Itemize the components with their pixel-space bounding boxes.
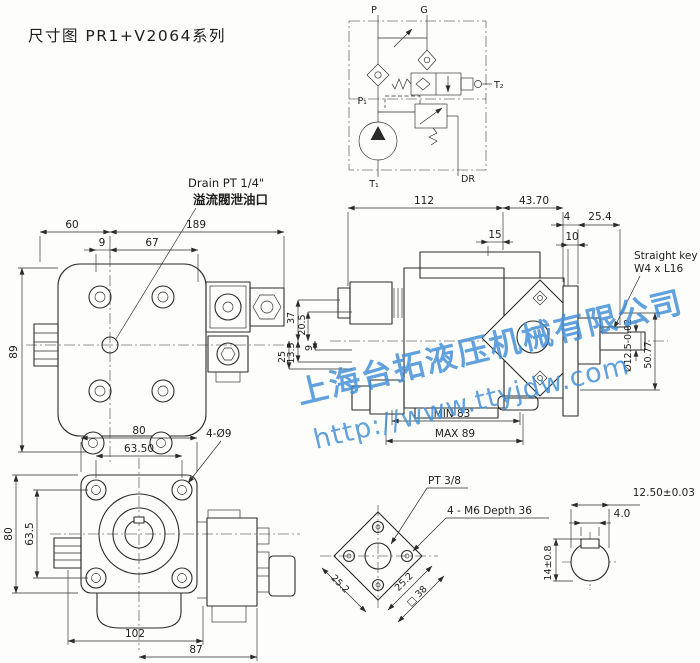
port-label-t1: T₁ xyxy=(368,179,379,190)
key-section xyxy=(581,539,599,548)
front-view: Drain PT 1/4" 溢流閥泄油口 60 189 9 67 89 xyxy=(8,176,292,462)
dim-10: 10 xyxy=(565,231,578,243)
dim-9-side: 9 xyxy=(304,345,315,351)
adjust-screw xyxy=(350,282,392,324)
drain-label-cn: 溢流閥泄油口 xyxy=(193,192,268,207)
key-label-1: Straight key xyxy=(634,250,698,262)
port-label-dr: DR xyxy=(461,174,475,185)
dim-max-89: MAX 89 xyxy=(435,428,475,440)
holes-label: 4-Ø9 xyxy=(206,428,231,440)
key-label-2: W4 x L16 xyxy=(634,263,683,275)
valve-assembly xyxy=(207,518,257,606)
dim-43-70: 43.70 xyxy=(519,195,549,207)
dim-80-left: 80 xyxy=(3,527,15,540)
port-label-t2: T₂ xyxy=(493,80,504,91)
page-title: 尺寸图 PR1+V2064系列 xyxy=(28,27,226,45)
m6-label: 4 - M6 Depth 36 xyxy=(447,505,532,517)
dim-63-50: 63.50 xyxy=(124,443,154,455)
dim-4: 4 xyxy=(564,211,571,223)
relief-valve-block xyxy=(206,282,250,332)
dim-sq-38: □ 38 xyxy=(405,584,430,609)
port-flange-view: PT 3/8 4 - M6 Depth 36 25.2 25.2 □ 38 xyxy=(320,475,549,622)
spring-symbol xyxy=(429,128,437,145)
watermark: 上海台拓液压机械有限公司 http://www.ttyjdw.com xyxy=(293,284,686,455)
pt-label: PT 3/8 xyxy=(428,475,461,487)
dim-12-50: 12.50±0.03 xyxy=(633,487,695,499)
port-label-g: G xyxy=(420,5,427,16)
spring-symbol xyxy=(392,79,411,89)
shaft-circle xyxy=(571,543,609,581)
dim-189: 189 xyxy=(186,219,206,231)
dim-37: 37 xyxy=(286,312,297,324)
bottom-view: 80 63.50 4-Ø9 80 63.5 102 87 xyxy=(3,425,300,661)
drawing-sheet: 尺寸图 PR1+V2064系列 P P₁ T₁ G T₂ xyxy=(0,0,700,663)
shaft-section-view: 12.50±0.03 4.0 14±0.8 xyxy=(543,487,695,590)
dim-112: 112 xyxy=(414,195,434,207)
dim-102: 102 xyxy=(125,628,145,640)
dim-87: 87 xyxy=(189,644,202,656)
dim-4-0: 4.0 xyxy=(614,508,631,520)
hydraulic-schematic: P P₁ T₁ G T₂ DR xyxy=(349,5,504,190)
dim-25-2-a: 25.2 xyxy=(328,573,351,596)
dim-25: 25 xyxy=(277,351,288,363)
drain-label: Drain PT 1/4" xyxy=(188,176,264,190)
dim-80-top: 80 xyxy=(132,425,145,437)
dim-14: 14±0.8 xyxy=(543,545,554,580)
dim-15: 15 xyxy=(488,229,501,241)
dim-25-4: 25.4 xyxy=(588,211,612,223)
hex-plug xyxy=(253,295,281,319)
dim-60: 60 xyxy=(65,219,78,231)
dim-25-2-b: 25.2 xyxy=(393,571,416,594)
port-label-p: P xyxy=(371,5,377,16)
port-label-p1: P₁ xyxy=(357,96,367,107)
dim-63-5: 63.5 xyxy=(24,522,36,545)
dim-89: 89 xyxy=(8,345,20,358)
dim-67: 67 xyxy=(145,237,158,249)
dim-9: 9 xyxy=(99,237,106,249)
dim-50-77: 50.77 xyxy=(643,341,654,368)
dim-20-5: 20.5 xyxy=(297,314,308,335)
